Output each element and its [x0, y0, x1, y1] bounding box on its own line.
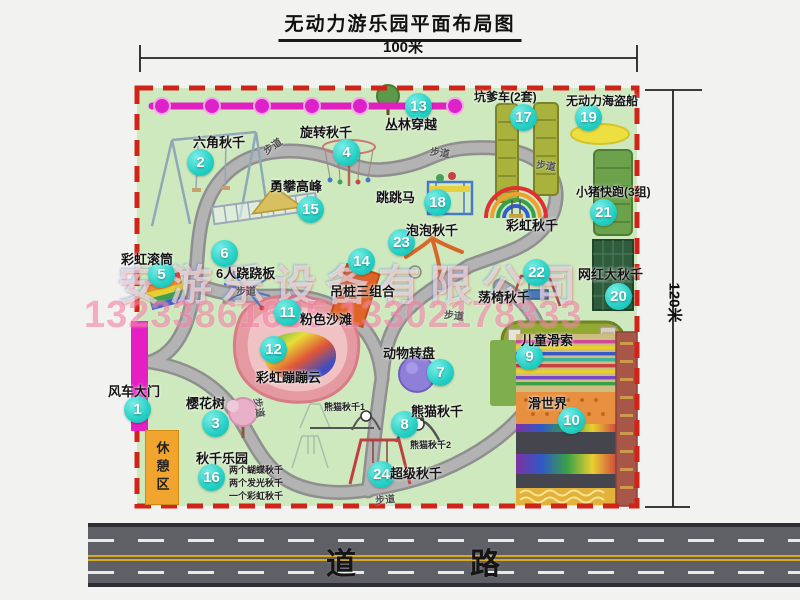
walkway-label-5: 步道 [443, 306, 464, 323]
attraction-badge-7: 7 [427, 359, 454, 386]
attraction-label-12: 彩虹蹦蹦云 [256, 367, 321, 386]
attraction-badge-16: 16 [198, 464, 225, 491]
attraction-label-15: 勇攀高峰 [270, 176, 322, 195]
panda-sub-label-2: 熊猫秋千2 [410, 438, 451, 451]
attraction-label-22: 荡椅秋千 [478, 287, 530, 306]
walkway-label-4: 步道 [236, 283, 256, 298]
attraction-label-21: 小猪快跑(3组) [576, 183, 651, 200]
attraction-badge-21: 21 [590, 199, 617, 226]
attraction-badge-18: 18 [424, 189, 451, 216]
walkway-label-2: 步道 [429, 143, 451, 161]
attraction-badge-4: 4 [333, 139, 360, 166]
walkway-label-7: 步道 [251, 396, 269, 418]
attraction-label-6: 6人跷跷板 [216, 263, 275, 282]
attraction-badge-15: 15 [297, 196, 324, 223]
swing-park-note-3: 一个彩虹秋千 [229, 489, 283, 502]
attraction-label-9: 儿童滑索 [521, 330, 573, 349]
attraction-label-19: 无动力海盗船 [566, 92, 638, 109]
attraction-label-3: 樱花树 [186, 393, 225, 412]
attraction-label-24: 超级秋千 [390, 463, 442, 482]
attraction-label-14: 吊桩三组合 [330, 281, 395, 300]
height-dimension-label: 120米 [665, 282, 686, 322]
attraction-label-18: 跳跳马 [376, 187, 415, 206]
attraction-badge-20: 20 [605, 283, 632, 310]
attraction-label-1: 风车大门 [108, 381, 160, 400]
attraction-label-5: 彩虹滚筒 [121, 249, 173, 268]
attraction-label-23: 泡泡秋千 [406, 220, 458, 239]
attraction-label-rainbow-swing: 彩虹秋千 [506, 215, 558, 234]
walkway-label-6: 步道 [374, 490, 395, 507]
attraction-label-2: 六角秋千 [193, 132, 245, 151]
attraction-badge-2: 2 [187, 149, 214, 176]
swing-park-note-2: 两个发光秋千 [229, 476, 283, 489]
attraction-badge-22: 22 [523, 259, 550, 286]
attraction-badge-1: 1 [124, 396, 151, 423]
attraction-label-13: 丛林穿越 [385, 114, 437, 133]
panda-sub-label-1: 熊猫秋千1 [324, 400, 365, 413]
attraction-label-20: 网红大秋千 [578, 264, 643, 283]
road: 道 路 [88, 523, 800, 587]
attraction-badge-12: 12 [260, 336, 287, 363]
attraction-badge-3: 3 [202, 410, 229, 437]
attraction-label-17: 坑爹车(2套) [474, 88, 537, 105]
attraction-label-7: 动物转盘 [383, 343, 435, 362]
road-label: 道 路 [326, 539, 518, 583]
attraction-badge-11: 11 [274, 299, 301, 326]
attraction-badge-17: 17 [510, 104, 537, 131]
width-dimension-label: 100米 [383, 36, 423, 57]
park-layout-map: 休憩区 安游乐设备有限公司 13233861635 13302178333 1风… [0, 0, 800, 600]
attraction-label-8: 熊猫秋千 [411, 401, 463, 420]
walkway-label-1: 步道 [260, 134, 285, 158]
attraction-label-10: 滑世界 [528, 393, 567, 412]
swing-park-note-1: 两个蝴蝶秋千 [229, 463, 283, 476]
attraction-badge-14: 14 [348, 248, 375, 275]
attraction-label-11: 粉色沙滩 [300, 309, 352, 328]
walkway-label-3: 步道 [535, 156, 557, 174]
attraction-label-4: 旋转秋千 [300, 122, 352, 141]
